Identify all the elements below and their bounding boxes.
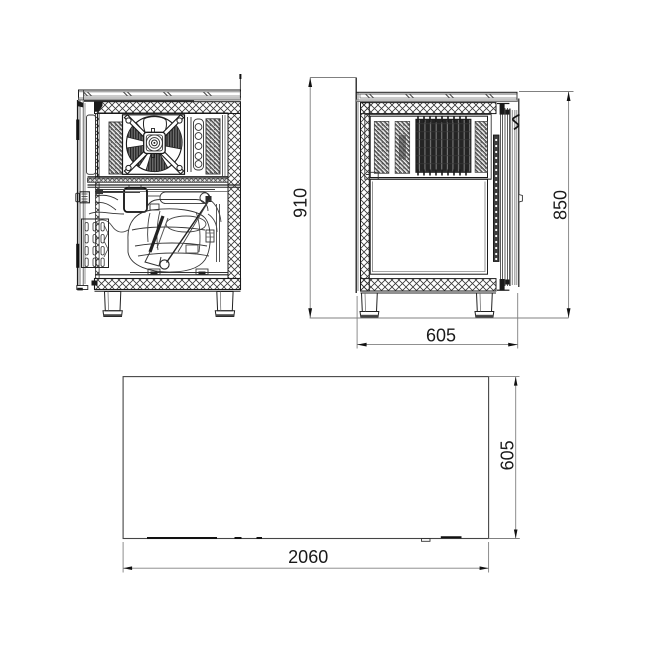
svg-text:850: 850 (551, 190, 571, 220)
svg-text:910: 910 (290, 188, 310, 218)
svg-text:2060: 2060 (288, 547, 328, 567)
svg-text:605: 605 (498, 440, 518, 470)
svg-text:605: 605 (426, 325, 456, 345)
